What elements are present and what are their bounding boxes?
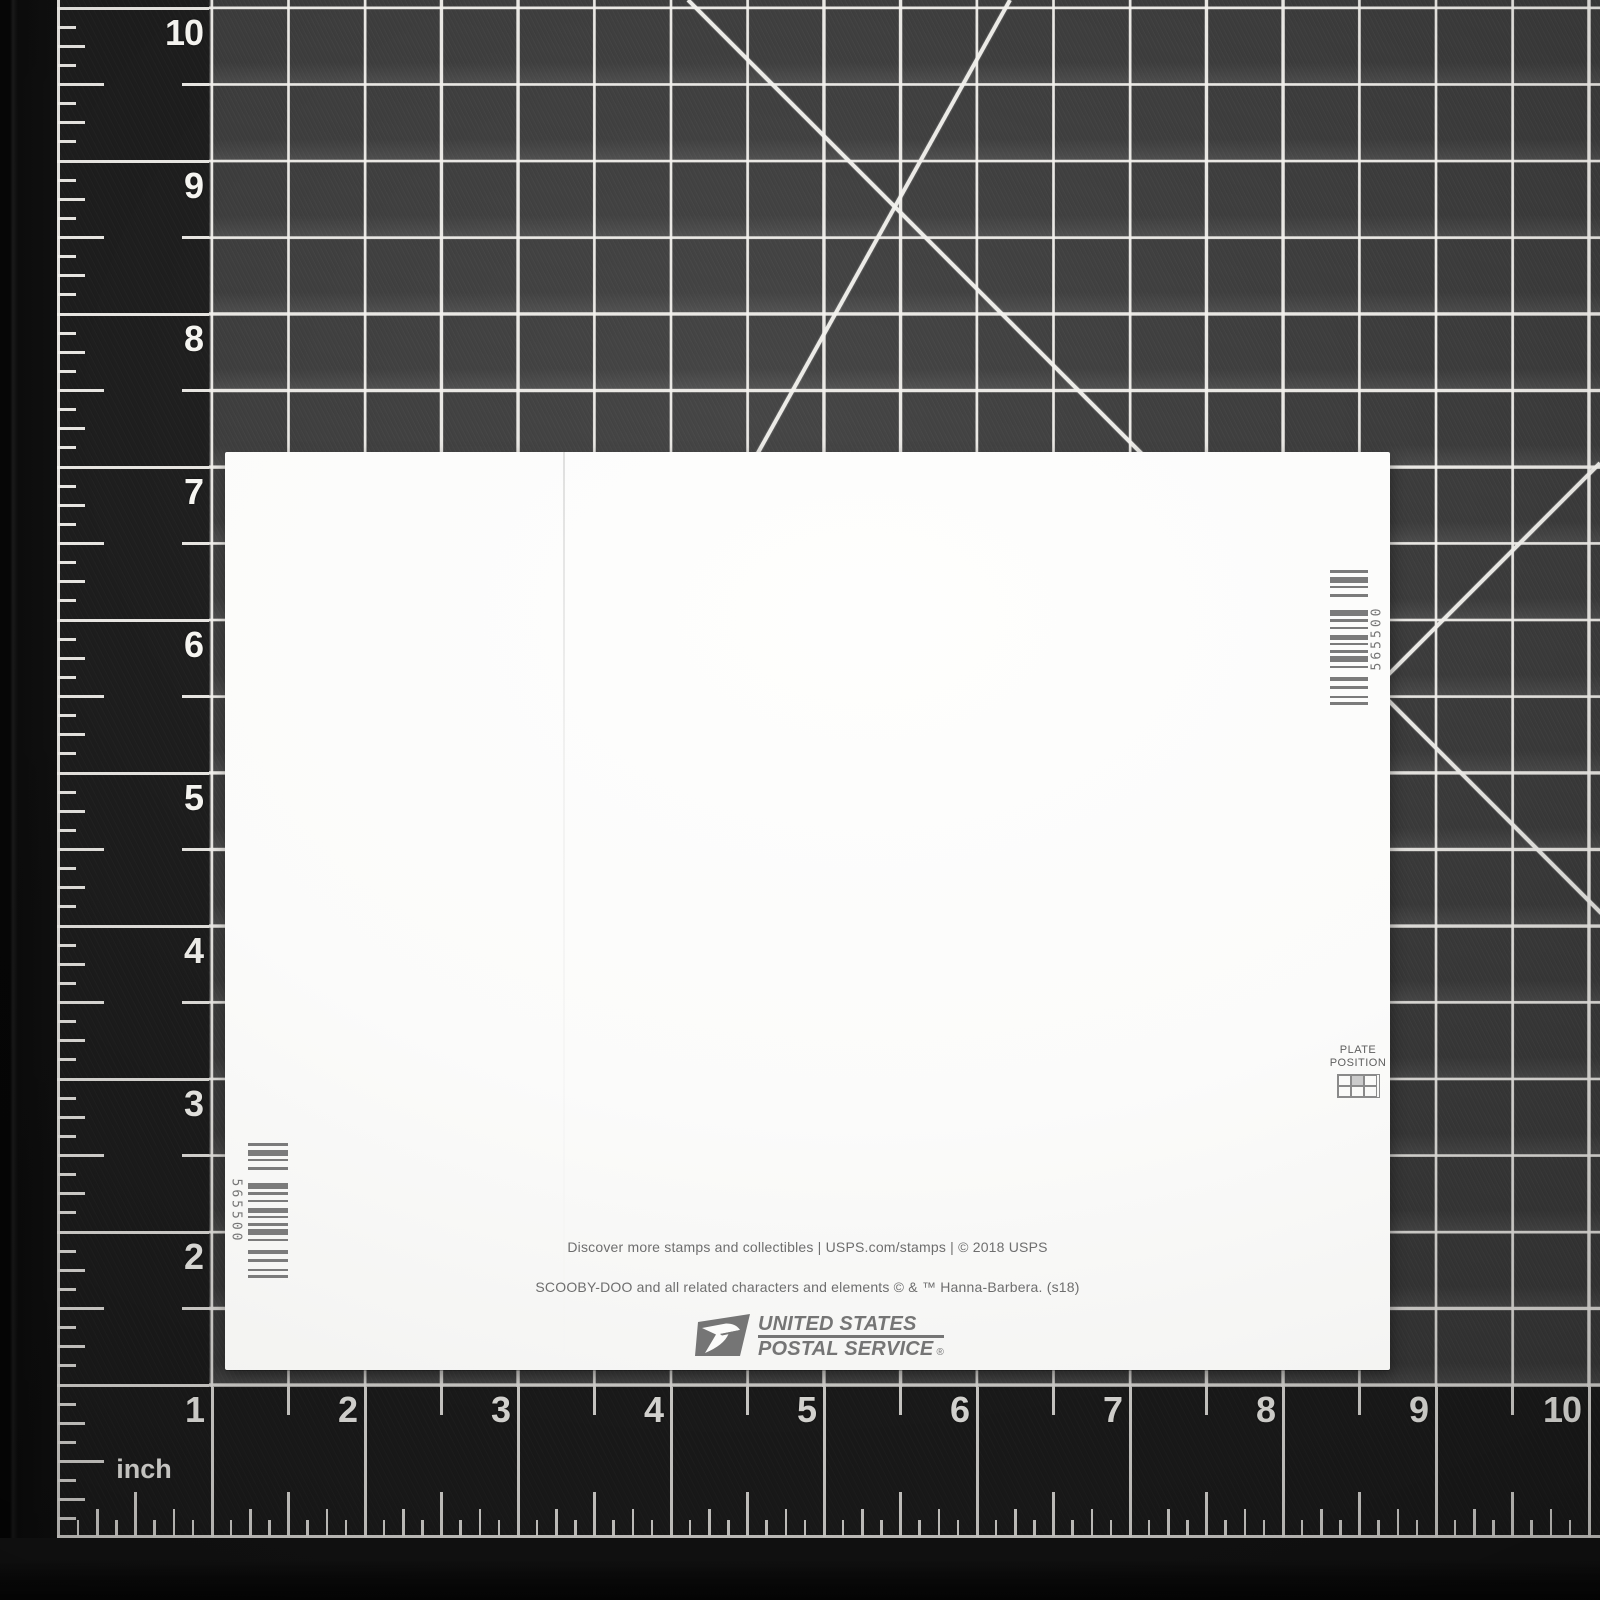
left-ruler-tick [58,121,85,124]
bottom-ruler-tick [689,1520,692,1536]
usps-logo-text: UNITED STATES POSTAL SERVICE® [758,1314,944,1363]
bottom-ruler-number: 4 [573,1392,663,1428]
left-ruler-tick [58,332,76,335]
left-ruler-tick [58,829,76,832]
bottom-ruler-tick [1167,1509,1170,1536]
left-ruler-tick [58,810,85,813]
left-ruler-tick [58,1250,76,1253]
bottom-ruler-tick [479,1509,482,1536]
bottom-ruler-tick [1569,1520,1572,1536]
bottom-ruler-tick [1377,1520,1380,1536]
left-ruler-tick [58,1479,76,1482]
left-ruler-tick [58,370,76,373]
barcode-left-bars [248,1143,288,1278]
bottom-ruler-tick [651,1520,654,1536]
left-ruler-tick [58,1135,76,1138]
left-ruler-tick [58,752,76,755]
bottom-ruler-tick [326,1509,329,1536]
left-ruler-tick [58,1211,76,1214]
left-ruler-tick [58,83,104,86]
bottom-ruler-tick [842,1520,845,1536]
left-ruler-tick [58,791,76,794]
bottom-inch-line [823,1387,826,1537]
bottom-ruler-tick [306,1520,309,1536]
bottom-ruler-tick [1071,1520,1074,1536]
inch-unit-label: inch [104,1456,184,1483]
bottom-ruler-tick [77,1520,80,1536]
left-ruler-tick [58,45,85,48]
bottom-ruler-tick [746,1492,749,1536]
left-ruler-tick [58,1001,104,1004]
bottom-ruler-tick [1416,1520,1419,1536]
bottom-ruler-tick [440,1492,443,1536]
left-ruler-tick [58,26,76,29]
left-ruler-tick [58,64,76,67]
bottom-ruler-tick [1397,1509,1400,1536]
left-half-inch-stub [182,695,209,698]
left-ruler-tick [58,1422,85,1425]
bottom-ruler-tick [1263,1520,1266,1536]
bottom-inch-line [976,1387,979,1537]
bottom-ruler-number: 7 [1032,1392,1122,1428]
left-ruler-tick [58,1364,76,1367]
left-ruler-tick [58,886,85,889]
bottom-ruler-number: 10 [1491,1392,1581,1428]
left-ruler-tick [58,274,85,277]
barcode-left-number: 565500 [229,1178,244,1243]
bottom-ruler-tick [173,1509,176,1536]
left-ruler-tick [58,1097,76,1100]
left-ruler-tick [58,504,85,507]
registered-mark: ® [936,1347,944,1358]
left-ruler-tick [58,102,76,105]
left-ruler-number: 7 [113,474,203,510]
bottom-ruler-tick [957,1520,960,1536]
bottom-ruler-tick [421,1520,424,1536]
left-ruler-tick [58,1403,76,1406]
barcode-left: 565500 [248,1143,288,1278]
left-ruler-tick [58,523,76,526]
bottom-ruler-tick [536,1520,539,1536]
left-ruler-tick [58,542,104,545]
left-ruler-tick [58,580,85,583]
usps-eagle-icon [695,1314,751,1361]
left-ruler-tick [58,1173,76,1176]
bottom-ruler-tick [1052,1492,1055,1536]
left-inch-line [57,619,209,622]
bottom-ruler-tick [287,1492,290,1536]
bottom-ruler-tick [612,1520,615,1536]
left-half-inch-stub [182,542,209,545]
left-inch-line [57,1231,209,1234]
bottom-ruler-tick [1511,1492,1514,1536]
left-half-inch-stub [182,1307,209,1310]
bottom-inch-line [211,1387,214,1537]
barcode-right-number: 565500 [1370,605,1385,670]
bottom-ruler-tick [115,1520,118,1536]
left-ruler-number: 6 [113,627,203,663]
bottom-ruler-number: 1 [114,1392,204,1428]
left-half-inch-stub [182,389,209,392]
bottom-inch-line [517,1387,520,1537]
plate-position-grid-icon [1337,1074,1380,1098]
left-ruler-tick [58,198,85,201]
bottom-ruler-tick [708,1509,711,1536]
left-ruler-tick [58,1345,85,1348]
left-ruler-tick [58,389,104,392]
left-ruler-tick [58,1307,104,1310]
plate-position-label-2: POSITION [1303,1057,1413,1070]
left-ruler-tick [58,427,85,430]
bottom-ruler-tick [459,1520,462,1536]
bottom-ruler-tick [632,1509,635,1536]
bottom-ruler-tick [727,1520,730,1536]
left-ruler-tick [58,963,85,966]
bottom-inch-line [670,1387,673,1537]
left-half-inch-stub [182,236,209,239]
left-ruler-tick [58,848,104,851]
left-ruler-number: 2 [113,1239,203,1275]
left-ruler-tick [58,1517,76,1520]
barcode-right-bars [1330,570,1368,705]
bottom-inch-line [1282,1387,1285,1537]
left-ruler-tick [58,561,76,564]
left-ruler-tick [58,657,85,660]
bottom-ruler-tick [1530,1520,1533,1536]
plate-position-label-1: PLATE [1303,1044,1413,1057]
bottom-ruler-tick [1110,1520,1113,1536]
left-ruler-tick [58,944,76,947]
bottom-inch-line [1588,1387,1591,1537]
left-ruler-number: 10 [113,15,203,51]
bottom-ruler-tick [1454,1520,1457,1536]
footer-trademark-line: SCOOBY-DOO and all related characters an… [225,1279,1390,1295]
left-half-inch-stub [182,848,209,851]
left-ruler-tick [58,140,76,143]
bottom-ruler-tick [1148,1520,1151,1536]
left-half-inch-stub [182,83,209,86]
bottom-ruler-tick [153,1520,156,1536]
bottom-ruler-number: 8 [1185,1392,1275,1428]
left-half-inch-stub [182,1001,209,1004]
left-inch-line [57,313,209,316]
bottom-ruler-tick [192,1520,195,1536]
bottom-ruler-tick [555,1509,558,1536]
bottom-ruler-tick [1014,1509,1017,1536]
left-ruler-tick [58,1288,76,1291]
bottom-ruler-tick [593,1492,596,1536]
left-ruler-tick [58,599,76,602]
left-ruler-tick [58,982,76,985]
bottom-ruler-number: 2 [267,1392,357,1428]
bottom-ruler-tick [918,1520,921,1536]
bottom-ruler-tick [899,1492,902,1536]
left-ruler-tick [58,733,85,736]
bottom-ruler-number: 3 [420,1392,510,1428]
left-ruler-tick [58,1058,76,1061]
plate-position-block: PLATE POSITION [1303,1044,1413,1098]
stamp-sheet-back: 565500 565500 PLATE POSITION Discover mo… [225,452,1390,1370]
bottom-ruler-tick [1358,1492,1361,1536]
bottom-ruler-number: 6 [879,1392,969,1428]
left-ruler-tick [58,446,76,449]
left-ruler-tick [58,1269,85,1272]
left-ruler-tick [58,1326,76,1329]
left-ruler-number: 5 [113,780,203,816]
left-inch-line [57,160,209,163]
bottom-inch-line [364,1387,367,1537]
bottom-ruler-tick [804,1520,807,1536]
bottom-ruler-tick [938,1509,941,1536]
left-ruler-tick [58,485,76,488]
left-ruler-number: 8 [113,321,203,357]
left-ruler-tick [58,1154,104,1157]
bottom-ruler-tick [134,1492,137,1536]
left-inch-line [57,466,209,469]
bottom-ruler-tick [995,1520,998,1536]
bottom-ruler-tick [765,1520,768,1536]
bottom-ruler-tick [383,1520,386,1536]
left-inch-line [57,925,209,928]
bottom-ruler-tick [96,1509,99,1536]
bottom-ruler-tick [1091,1509,1094,1536]
bottom-ruler-tick [861,1509,864,1536]
left-inch-line [57,1384,209,1387]
left-ruler-number: 3 [113,1086,203,1122]
left-inch-line [57,772,209,775]
bottom-ruler-tick [498,1520,501,1536]
bottom-ruler-tick [1473,1509,1476,1536]
left-ruler-tick [58,351,85,354]
bottom-ruler-number: 5 [726,1392,816,1428]
left-ruler-tick [58,1039,85,1042]
bottom-ruler-tick [1492,1520,1495,1536]
bottom-ruler-tick [1244,1509,1247,1536]
usps-logo-line2: POSTAL SERVICE [758,1338,933,1360]
left-ruler-tick [58,1460,104,1463]
left-ruler-tick [58,867,76,870]
bottom-ruler-number: 9 [1338,1392,1428,1428]
left-ruler-tick [58,236,104,239]
bottom-ruler-tick [249,1509,252,1536]
bottom-ruler-tick [230,1520,233,1536]
left-ruler-tick [58,255,76,258]
bottom-ruler-tick [1224,1520,1227,1536]
left-ruler-number: 4 [113,933,203,969]
left-ruler-tick [58,1020,76,1023]
bottom-ruler-tick [1033,1520,1036,1536]
bottom-inch-line [1129,1387,1132,1537]
bottom-ruler-tick [402,1509,405,1536]
left-ruler-tick [58,408,76,411]
bottom-ruler-tick [1205,1492,1208,1536]
bottom-ruler-tick [574,1520,577,1536]
left-ruler-tick [58,1192,85,1195]
left-inch-line [57,7,209,10]
left-ruler-tick [58,1441,76,1444]
bottom-ruler-tick [268,1520,271,1536]
bottom-ruler-tick [1301,1520,1304,1536]
left-ruler-tick [58,638,76,641]
left-ruler-tick [58,179,76,182]
left-ruler-tick [58,695,104,698]
usps-logo: UNITED STATES POSTAL SERVICE® [695,1314,944,1363]
paper-crease [563,452,565,1370]
cutting-mat-photo: 234567891012345678910 inch 565500 565500… [0,0,1600,1600]
left-inch-line [57,1078,209,1081]
left-ruler-tick [58,714,76,717]
bottom-inch-line [1435,1387,1438,1537]
bottom-ruler-tick [785,1509,788,1536]
bottom-ruler-tick [1550,1509,1553,1536]
left-half-inch-stub [182,1154,209,1157]
barcode-bar [248,1275,288,1278]
usps-logo-line1: UNITED STATES [758,1314,944,1334]
left-ruler-tick [58,1116,85,1119]
bottom-ruler-tick [1186,1520,1189,1536]
left-ruler-tick [58,1498,85,1501]
bottom-ruler-tick [1320,1509,1323,1536]
left-ruler-tick [58,293,76,296]
left-ruler-tick [58,905,76,908]
footer-discover-line: Discover more stamps and collectibles | … [225,1239,1390,1255]
bottom-ruler-tick [1339,1520,1342,1536]
left-ruler-number: 9 [113,168,203,204]
barcode-bar [1330,702,1368,705]
left-ruler-tick [58,676,76,679]
bottom-ruler-tick [880,1520,883,1536]
barcode-right: 565500 [1330,570,1368,705]
left-ruler-tick [58,217,76,220]
bottom-ruler-tick [345,1520,348,1536]
